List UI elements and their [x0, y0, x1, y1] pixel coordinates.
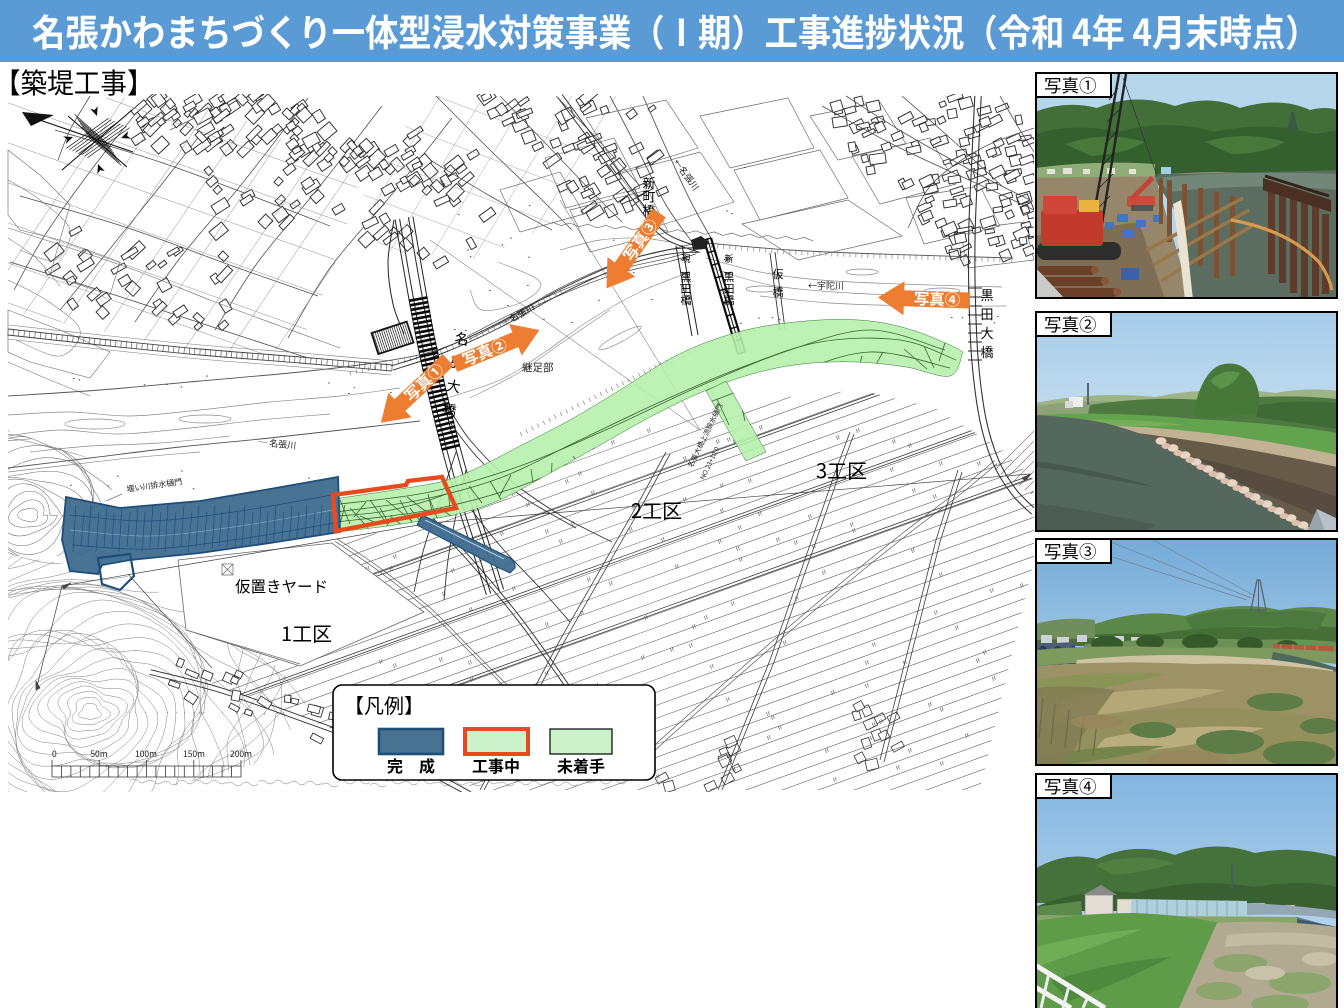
svg-text:未着手: 未着手 [557, 753, 605, 777]
svg-text:堰い川排水樋門: 堰い川排水樋門 [126, 476, 183, 495]
svg-text:工事中: 工事中 [472, 753, 520, 777]
svg-text:写真①: 写真① [1044, 73, 1097, 98]
svg-text:1工区: 1工区 [281, 618, 332, 647]
svg-text:黒田大橋: 黒田大橋 [980, 285, 993, 361]
svg-text:─名張川: ─名張川 [499, 300, 537, 329]
svg-text:200m: 200m [230, 748, 252, 760]
svg-text:写真④: 写真④ [913, 287, 961, 311]
svg-text:写真②: 写真② [1044, 312, 1097, 337]
svg-text:【凡例】: 【凡例】 [344, 690, 424, 719]
svg-text:継足部: 継足部 [522, 360, 554, 375]
svg-text:2工区: 2工区 [631, 495, 682, 524]
svg-text:0: 0 [52, 748, 57, 760]
svg-text:100m: 100m [135, 748, 157, 760]
svg-text:黒田橋: 黒田橋 [724, 269, 735, 308]
svg-text:150m: 150m [183, 748, 205, 760]
svg-text:←宇陀川: ←宇陀川 [808, 279, 844, 292]
svg-text:写真④: 写真④ [1044, 774, 1097, 799]
svg-text:完 成: 完 成 [387, 753, 435, 777]
svg-text:50m: 50m [90, 748, 107, 760]
svg-text:3工区: 3工区 [816, 455, 867, 484]
svg-text:黒田橋: 黒田橋 [681, 269, 692, 308]
svg-text:仮置きヤード: 仮置きヤード [235, 575, 328, 597]
svg-text:─ 名張川: ─ 名張川 [258, 435, 297, 452]
svg-text:←名張川: ←名張川 [671, 156, 703, 193]
svg-text:写真③: 写真③ [1044, 539, 1097, 564]
